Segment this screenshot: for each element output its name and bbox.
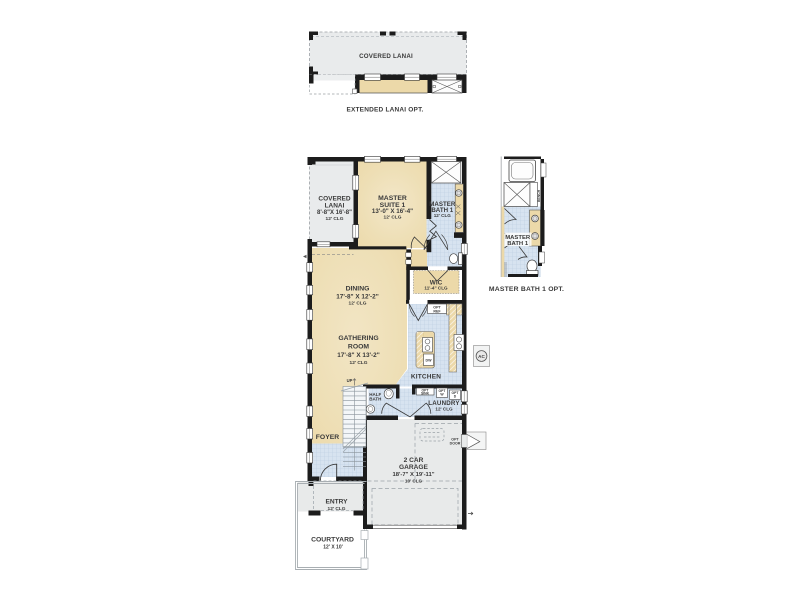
svg-text:BATH: BATH xyxy=(369,396,381,401)
svg-text:12' CLG: 12' CLG xyxy=(384,215,402,221)
svg-text:12' CLG: 12' CLG xyxy=(326,216,344,222)
svg-text:COVERED: COVERED xyxy=(318,196,350,203)
svg-text:12' CLG: 12' CLG xyxy=(349,301,367,307)
svg-text:AC: AC xyxy=(478,354,485,359)
svg-text:10' CLG: 10' CLG xyxy=(405,478,423,483)
svg-text:REF: REF xyxy=(433,309,441,313)
svg-text:EXTENDED LANAI OPT.: EXTENDED LANAI OPT. xyxy=(346,107,423,114)
svg-text:ROOM: ROOM xyxy=(348,343,369,350)
svg-text:FOYER: FOYER xyxy=(316,434,340,441)
svg-text:11'-4" CLG: 11'-4" CLG xyxy=(424,286,448,291)
svg-text:ENTRY: ENTRY xyxy=(325,499,348,506)
svg-text:2 CAR: 2 CAR xyxy=(404,457,424,464)
svg-text:DOOR: DOOR xyxy=(450,442,461,446)
svg-text:COURTYARD: COURTYARD xyxy=(311,537,354,544)
svg-text:LANAI: LANAI xyxy=(325,203,345,210)
svg-text:DINING: DINING xyxy=(346,285,370,292)
svg-text:12' CLG: 12' CLG xyxy=(328,506,346,512)
svg-text:KITCHEN: KITCHEN xyxy=(411,374,441,381)
svg-text:GATHERING: GATHERING xyxy=(338,335,378,342)
svg-text:MASTER BATH 1 OPT.: MASTER BATH 1 OPT. xyxy=(489,286,564,293)
svg-text:12' CLG: 12' CLG xyxy=(434,213,452,218)
svg-text:BATH 1: BATH 1 xyxy=(507,241,529,247)
svg-text:17'-8" X 13'-2": 17'-8" X 13'-2" xyxy=(337,352,380,359)
svg-text:GARAGE: GARAGE xyxy=(399,464,429,471)
svg-text:12' CLG: 12' CLG xyxy=(350,360,368,366)
svg-text:8'-8"X 16'-8": 8'-8"X 16'-8" xyxy=(317,210,352,216)
svg-text:17'-8" X 12'-2": 17'-8" X 12'-2" xyxy=(336,294,379,301)
svg-text:BENCH: BENCH xyxy=(537,189,541,202)
svg-text:13'-0" X 16'-4": 13'-0" X 16'-4" xyxy=(372,208,413,215)
svg-text:18'-7" X 19'-11": 18'-7" X 19'-11" xyxy=(392,472,434,478)
svg-text:SINK: SINK xyxy=(421,392,430,396)
svg-text:UP: UP xyxy=(347,378,353,383)
svg-text:12' X 10': 12' X 10' xyxy=(323,545,343,551)
svg-text:12' CLG: 12' CLG xyxy=(435,406,453,411)
svg-text:DW: DW xyxy=(426,359,433,363)
svg-text:COVERED LANAI: COVERED LANAI xyxy=(359,53,413,60)
